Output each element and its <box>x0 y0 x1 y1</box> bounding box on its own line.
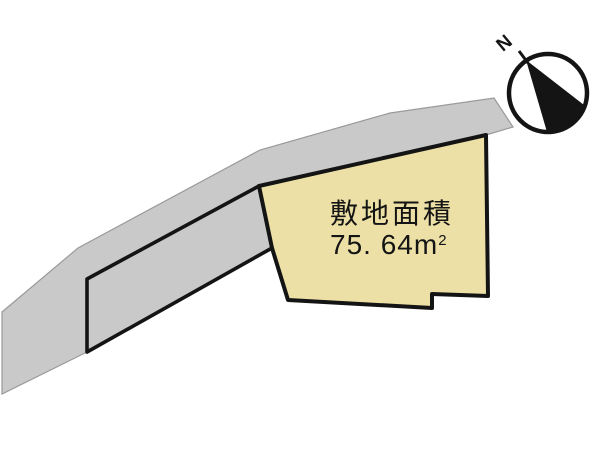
plot-area-unit-exponent: 2 <box>438 232 446 249</box>
site-plan-canvas: 敷地面積 75. 64m2 N <box>0 0 600 449</box>
site-plan-drawing <box>0 0 600 449</box>
plot-area-label: 敷地面積 75. 64m2 <box>330 198 454 260</box>
plot-area-value: 75. 64m2 <box>330 229 454 260</box>
plot-area-title: 敷地面積 <box>330 198 454 229</box>
